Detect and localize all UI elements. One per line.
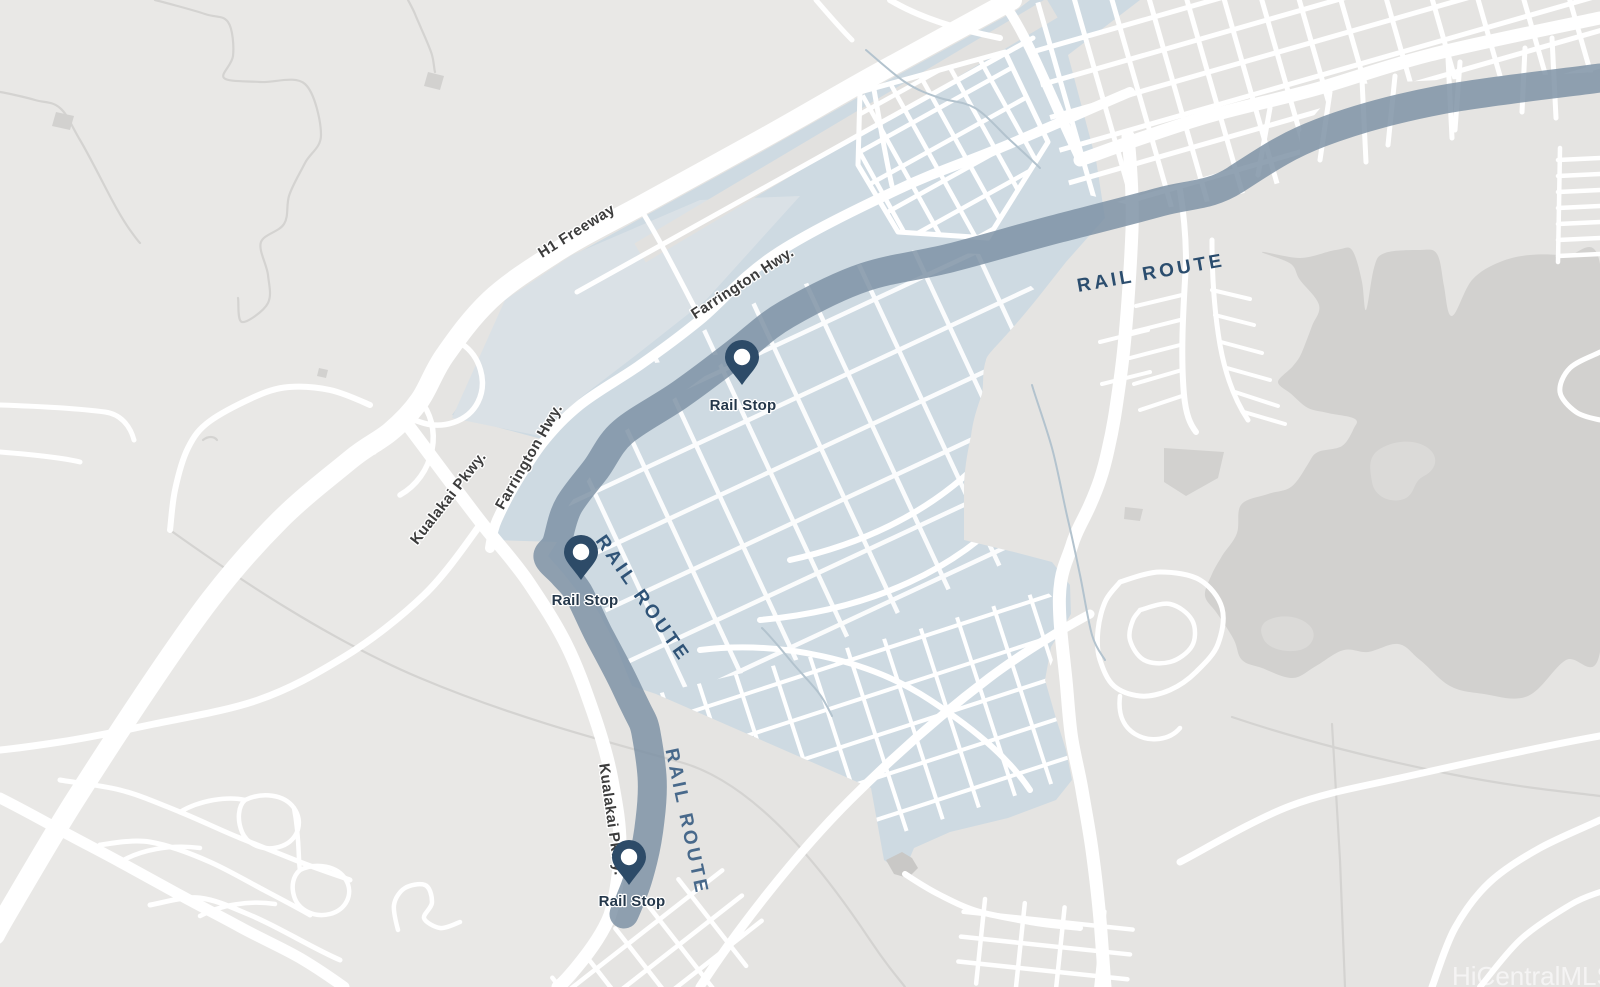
svg-text:Rail Stop: Rail Stop (710, 397, 777, 414)
svg-text:HiCentralMLS: HiCentralMLS (1452, 961, 1600, 987)
svg-text:Rail Stop: Rail Stop (599, 893, 666, 910)
svg-text:Rail Stop: Rail Stop (552, 592, 619, 609)
